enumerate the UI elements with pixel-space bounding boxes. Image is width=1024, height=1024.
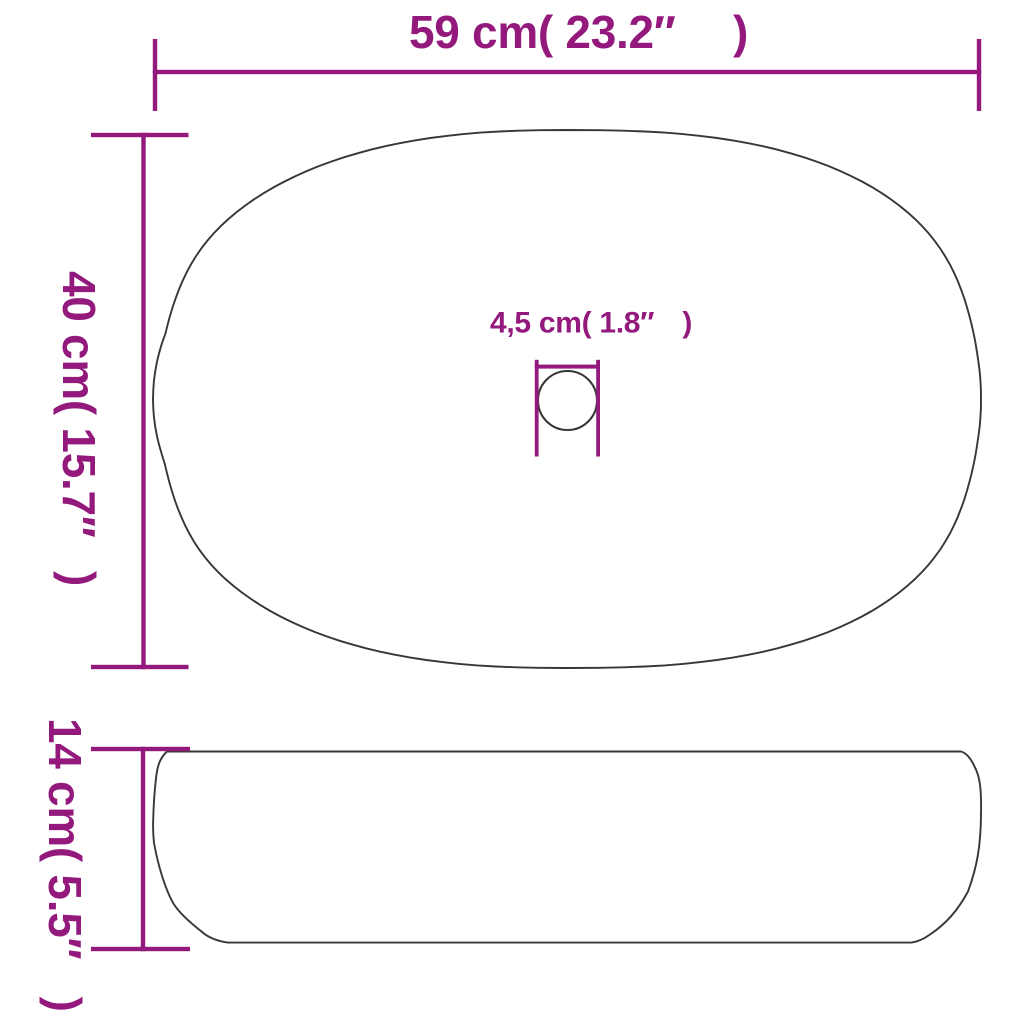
svg-text:4,5 cm( 1.8″ ): 4,5 cm( 1.8″ ) [490, 307, 692, 340]
svg-text:14 cm( 5.5″ ): 14 cm( 5.5″ ) [39, 718, 91, 1012]
svg-text:59 cm( 23.2″ ): 59 cm( 23.2″ ) [409, 6, 748, 58]
svg-text:40 cm( 15.7″ ): 40 cm( 15.7″ ) [53, 271, 105, 586]
